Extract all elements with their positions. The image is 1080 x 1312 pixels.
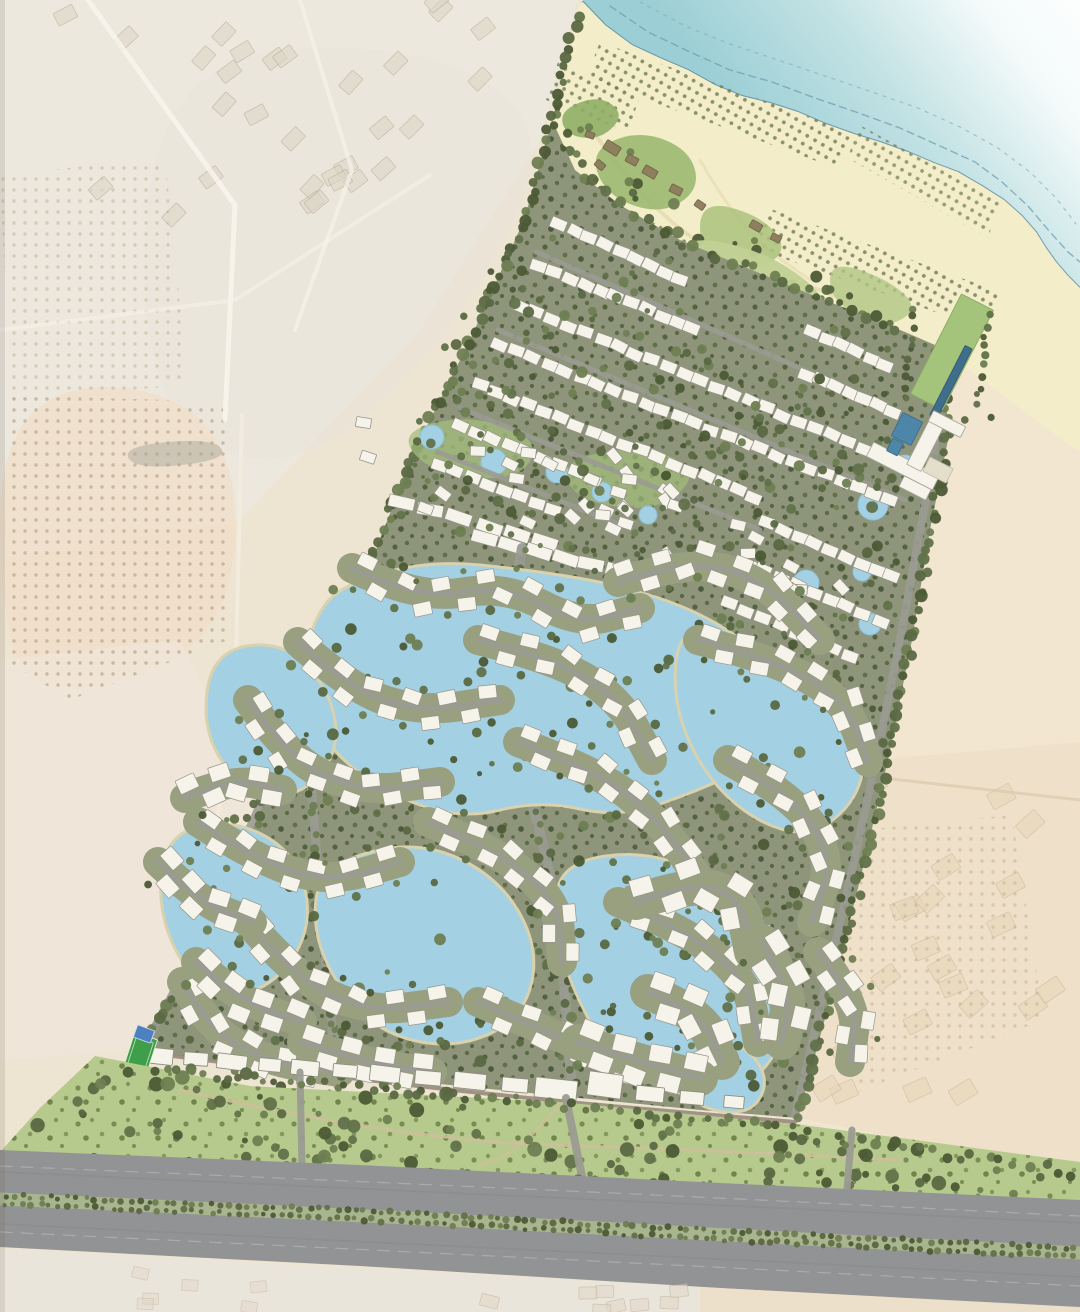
scan-edge-strip (0, 0, 5, 1312)
site-plan-canvas (0, 0, 1080, 1312)
master-plan-map (0, 0, 1080, 1312)
